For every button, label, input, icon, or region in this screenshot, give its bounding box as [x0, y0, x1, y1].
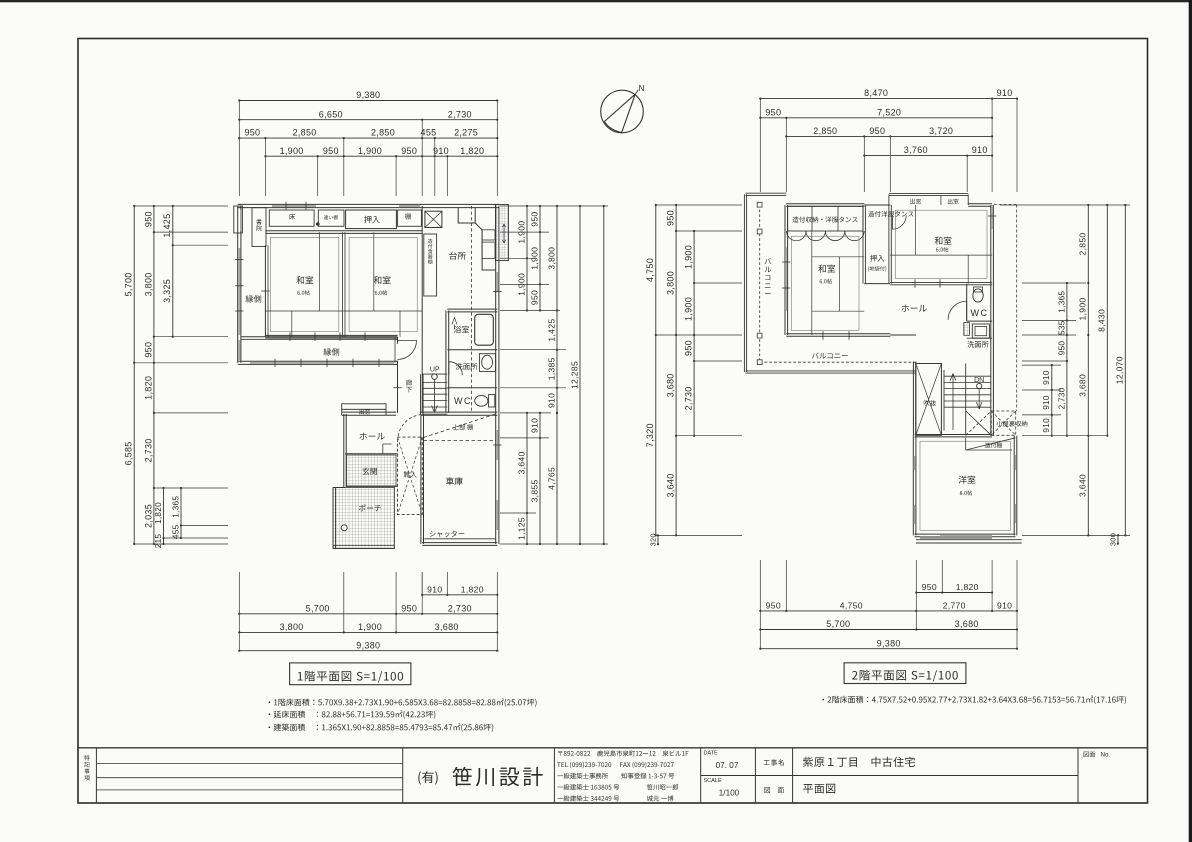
svg-text:950: 950	[323, 146, 339, 156]
svg-text:9,380: 9,380	[356, 90, 380, 100]
svg-text:2,730: 2,730	[1057, 387, 1066, 409]
svg-text:7,320: 7,320	[645, 423, 655, 447]
svg-text:535: 535	[1057, 320, 1066, 335]
svg-text:5,700: 5,700	[826, 619, 850, 629]
svg-text:1,820: 1,820	[460, 146, 484, 156]
svg-text:3,800: 3,800	[666, 271, 676, 295]
svg-text:1,900: 1,900	[358, 146, 382, 156]
svg-text:950: 950	[529, 211, 539, 226]
svg-text:300: 300	[1108, 533, 1117, 546]
svg-text:1,125: 1,125	[516, 517, 526, 540]
svg-text:3,680: 3,680	[955, 619, 979, 629]
svg-text:950: 950	[401, 603, 417, 613]
svg-text:3,640: 3,640	[516, 451, 526, 474]
svg-text:1,425: 1,425	[546, 319, 556, 342]
svg-text:1,900: 1,900	[358, 622, 382, 632]
svg-text:8,470: 8,470	[864, 88, 888, 98]
svg-text:07. 07: 07. 07	[716, 761, 739, 770]
svg-text:1,900: 1,900	[684, 297, 694, 321]
svg-text:455: 455	[421, 128, 437, 138]
svg-text:910: 910	[997, 601, 1012, 611]
svg-text:2,730: 2,730	[684, 386, 694, 410]
svg-text:950: 950	[244, 128, 260, 138]
svg-text:1,820: 1,820	[154, 502, 163, 524]
svg-text:910: 910	[427, 584, 442, 594]
svg-text:950: 950	[529, 290, 539, 305]
svg-text:910: 910	[1042, 418, 1051, 433]
svg-text:1,820: 1,820	[143, 376, 153, 400]
svg-text:455: 455	[171, 524, 180, 539]
svg-text:5,700: 5,700	[124, 272, 134, 296]
svg-text:1,900: 1,900	[280, 146, 304, 156]
svg-text:950: 950	[766, 601, 781, 611]
svg-text:910: 910	[529, 418, 539, 433]
svg-text:1,820: 1,820	[956, 582, 979, 592]
svg-text:2,850: 2,850	[1078, 232, 1088, 255]
svg-text:950: 950	[401, 146, 417, 156]
svg-text:WC: WC	[971, 308, 989, 318]
svg-text:910: 910	[433, 146, 449, 156]
svg-text:1,900: 1,900	[1078, 297, 1088, 320]
svg-text:3,800: 3,800	[280, 622, 304, 632]
svg-text:950: 950	[1057, 341, 1066, 356]
svg-text:1,365: 1,365	[1057, 291, 1066, 313]
svg-text:1/100: 1/100	[719, 789, 740, 798]
svg-text:2,850: 2,850	[371, 128, 395, 138]
svg-text:1,900: 1,900	[684, 245, 694, 269]
svg-text:6,585: 6,585	[124, 441, 134, 465]
svg-text:12,070: 12,070	[1115, 356, 1125, 384]
svg-text:No.: No.	[1101, 752, 1111, 759]
svg-text:3,855: 3,855	[529, 479, 539, 502]
svg-text:9,380: 9,380	[877, 638, 901, 648]
svg-text:3,800: 3,800	[546, 247, 556, 270]
svg-text:4,750: 4,750	[645, 258, 655, 282]
svg-text:4,765: 4,765	[546, 467, 556, 490]
svg-text:950: 950	[922, 582, 937, 592]
svg-text:8,430: 8,430	[1097, 309, 1107, 332]
svg-text:WC: WC	[454, 396, 472, 406]
svg-text:3,680: 3,680	[666, 373, 676, 397]
svg-text:3,325: 3,325	[162, 279, 172, 303]
svg-text:910: 910	[546, 393, 556, 408]
svg-text:12,285: 12,285	[569, 361, 579, 389]
svg-text:950: 950	[765, 107, 781, 117]
svg-text:215: 215	[154, 534, 163, 549]
svg-text:3,640: 3,640	[1078, 474, 1088, 497]
svg-text:N: N	[639, 84, 645, 93]
svg-text:2,770: 2,770	[943, 601, 966, 611]
svg-text:2,730: 2,730	[448, 603, 472, 613]
svg-text:7,520: 7,520	[877, 107, 901, 117]
svg-text:6,650: 6,650	[319, 109, 343, 119]
svg-text:3,800: 3,800	[143, 272, 153, 296]
svg-text:910: 910	[997, 88, 1013, 98]
svg-text:3,680: 3,680	[1078, 374, 1088, 397]
svg-text:2,730: 2,730	[143, 438, 153, 462]
svg-text:950: 950	[684, 340, 694, 356]
svg-text:910: 910	[1042, 395, 1051, 410]
svg-text:1,425: 1,425	[162, 214, 172, 238]
svg-text:2,850: 2,850	[813, 126, 837, 136]
svg-text:2,035: 2,035	[143, 504, 153, 528]
svg-text:4,750: 4,750	[840, 601, 863, 611]
svg-text:950: 950	[666, 210, 676, 226]
svg-text:1,820: 1,820	[461, 584, 484, 594]
svg-text:3,720: 3,720	[929, 126, 953, 136]
svg-text:910: 910	[972, 145, 988, 155]
svg-text:910: 910	[1042, 370, 1051, 385]
svg-text:950: 950	[869, 126, 885, 136]
svg-text:9,380: 9,380	[356, 640, 380, 650]
svg-text:SCALE: SCALE	[704, 778, 722, 784]
svg-text:3,680: 3,680	[435, 622, 459, 632]
svg-text:950: 950	[143, 342, 153, 358]
svg-text:950: 950	[143, 211, 153, 227]
svg-text:UP: UP	[430, 367, 440, 374]
svg-text:2,850: 2,850	[293, 128, 317, 138]
svg-text:2,730: 2,730	[448, 109, 472, 119]
svg-text:3,760: 3,760	[904, 145, 928, 155]
svg-text:DATE: DATE	[704, 751, 719, 757]
svg-text:1,385: 1,385	[546, 357, 556, 380]
svg-text:2,275: 2,275	[454, 128, 478, 138]
svg-text:1,365: 1,365	[171, 496, 180, 518]
svg-text:5,700: 5,700	[306, 603, 330, 613]
svg-text:3,640: 3,640	[666, 473, 676, 497]
